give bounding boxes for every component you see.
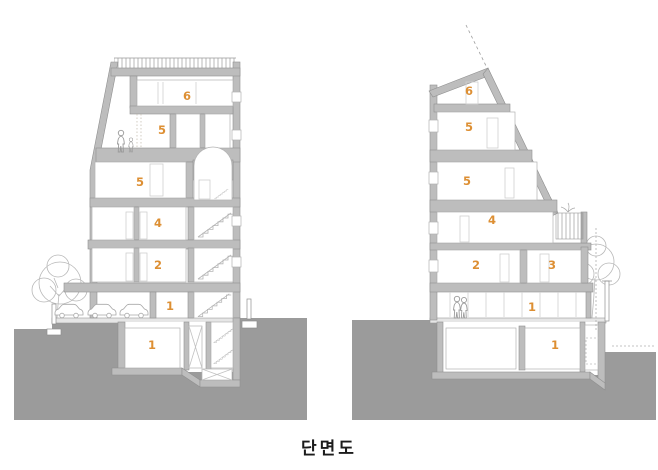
floor-label: 5 bbox=[463, 174, 471, 188]
plant-icon bbox=[561, 203, 575, 212]
people-figures bbox=[454, 296, 468, 318]
arch-opening bbox=[194, 147, 232, 200]
left-building-dashed-lines bbox=[137, 114, 141, 148]
drawing-title: 단면도 bbox=[0, 434, 658, 459]
floor-label: 1 bbox=[148, 338, 156, 352]
roof-hatch bbox=[114, 58, 236, 68]
floor-label: 5 bbox=[465, 120, 473, 134]
floor-label: 3 bbox=[548, 258, 556, 272]
retaining-post bbox=[602, 281, 612, 321]
parked-cars bbox=[55, 304, 148, 318]
section-drawing-page: 6 5 5 4 2 1 1 bbox=[0, 0, 658, 470]
floor-label: 1 bbox=[528, 300, 536, 314]
floor-label: 6 bbox=[465, 84, 473, 98]
floor-label: 1 bbox=[166, 299, 174, 313]
terrace-planter bbox=[556, 203, 583, 239]
floor-label: 2 bbox=[472, 258, 480, 272]
floor-label: 6 bbox=[183, 89, 191, 103]
floor-label: 1 bbox=[551, 338, 559, 352]
floor-label: 5 bbox=[158, 123, 166, 137]
floor-label: 4 bbox=[488, 213, 496, 227]
floor-label: 2 bbox=[154, 258, 162, 272]
floor-label: 4 bbox=[154, 216, 162, 230]
right-building-section: 6 5 5 4 2 3 1 1 bbox=[429, 25, 655, 390]
floor-label: 5 bbox=[136, 175, 144, 189]
section-drawing-canvas: 6 5 5 4 2 1 1 bbox=[0, 0, 658, 470]
